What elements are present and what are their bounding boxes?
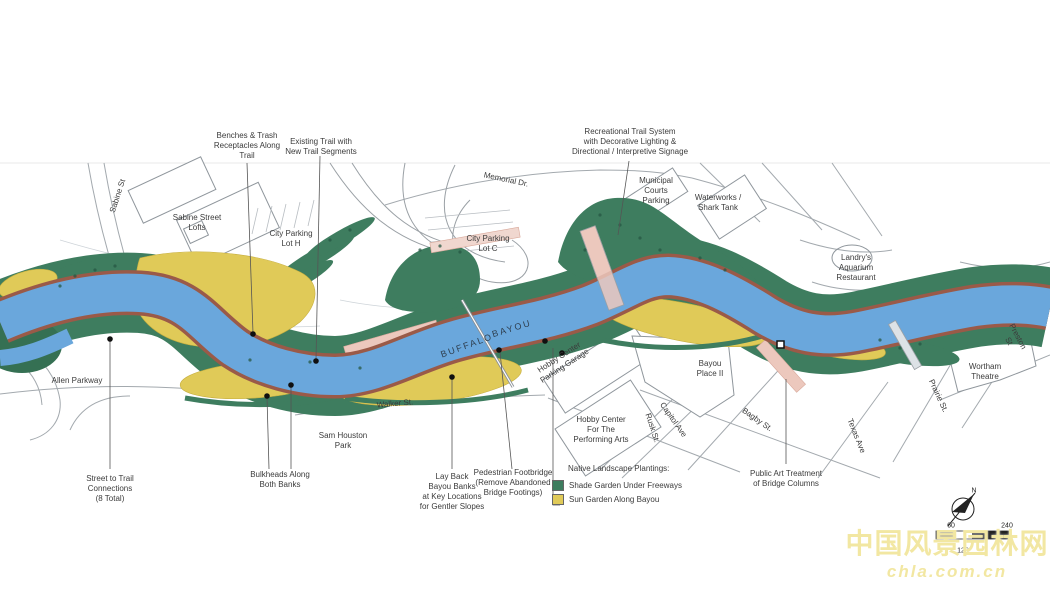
callout-existing-trail: Existing Trail with New Trail Segments [285,137,357,157]
building-label-sabine-lofts: Sabine Street Lofts [173,213,221,233]
legend-swatch-shade-garden [552,480,564,491]
site-plan-page: Benches & Trash Receptacles Along Trail … [0,0,1050,591]
site-plan-svg [0,0,1050,591]
legend-native-plantings: Native Landscape Plantings: Shade Garden… [552,464,682,505]
building-label-wortham-theatre: Wortham Theatre [969,362,1001,382]
area-label-city-parking-lot-c: City Parking Lot C [466,234,509,254]
street-label-allen-parkway: Allen Parkway [52,376,103,386]
watermark-chinese-text: 中国风景园林网 [840,522,1050,562]
legend-label-sun-garden: Sun Garden Along Bayou [569,495,659,504]
compass-north-label: N [971,488,976,495]
legend-item-sun: Sun Garden Along Bayou [552,494,682,505]
building-label-waterworks-shark-tank: Waterworks / Shark Tank [695,193,741,213]
legend-title: Native Landscape Plantings: [568,464,682,473]
area-label-municipal-courts-parking: Municipal Courts Parking [639,176,673,206]
public-art-marker [777,341,784,348]
legend-label-shade-garden: Shade Garden Under Freeways [569,481,682,490]
callout-recreational-trail: Recreational Trail System with Decorativ… [572,127,688,157]
callout-benches-trash: Benches & Trash Receptacles Along Trail [214,131,280,161]
area-label-sam-houston-park: Sam Houston Park [319,431,367,451]
building-label-hobby-center: Hobby Center For The Performing Arts [573,415,628,445]
watermark: 中国风景园林网 chla.com.cn [840,522,1050,582]
legend-item-shade: Shade Garden Under Freeways [552,480,682,491]
callout-street-to-trail: Street to Trail Connections (8 Total) [86,474,134,504]
building-label-bayou-place-ii: Bayou Place II [697,359,724,379]
callout-pedestrian-footbridge: Pedestrian Footbridge (Remove Abandoned … [474,468,553,498]
callout-public-art: Public Art Treatment of Bridge Columns [750,469,822,489]
area-label-city-parking-lot-h: City Parking Lot H [269,229,312,249]
watermark-url-text: chla.com.cn [840,562,1050,582]
callout-bulkheads: Bulkheads Along Both Banks [250,470,310,490]
legend-swatch-sun-garden [552,494,564,505]
building-label-landrys-aquarium: Landry's Aquarium Restaurant [836,253,875,283]
